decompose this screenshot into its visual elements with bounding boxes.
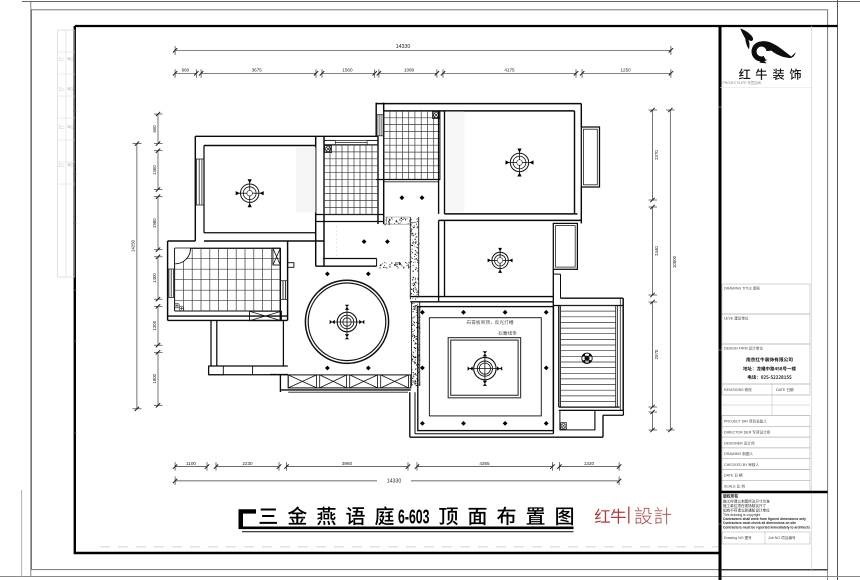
svg-text:施工时请以本图所注尺寸为准: 施工时请以本图所注尺寸为准 xyxy=(723,499,770,504)
svg-text:1080: 1080 xyxy=(404,68,415,73)
svg-text:1400: 1400 xyxy=(152,273,157,283)
svg-text:DIRECTOR DER 专项设计师: DIRECTOR DER 专项设计师 xyxy=(724,430,771,435)
svg-text:DATE 日 期: DATE 日 期 xyxy=(724,473,743,478)
svg-text:乙二: 乙二 xyxy=(58,56,64,61)
svg-text:乙二: 乙二 xyxy=(58,162,64,167)
svg-text:施工单位须在现场核实尺寸: 施工单位须在现场核实尺寸 xyxy=(723,503,767,508)
svg-text:660: 660 xyxy=(182,68,190,73)
svg-text:2230: 2230 xyxy=(242,461,253,466)
svg-text:SCALE 比 例: SCALE 比 例 xyxy=(724,484,745,489)
svg-text:1320: 1320 xyxy=(584,461,595,466)
svg-text:14330: 14330 xyxy=(387,478,402,484)
svg-text:REVISIONS 修改: REVISIONS 修改 xyxy=(724,387,752,392)
svg-text:660: 660 xyxy=(152,125,157,133)
svg-text:甲乙: 甲乙 xyxy=(67,124,73,129)
svg-text:6-603: 6-603 xyxy=(398,506,430,529)
svg-text:DRAWING TITLE 图名: DRAWING TITLE 图名 xyxy=(724,286,761,291)
svg-text:甲乙: 甲乙 xyxy=(67,56,73,61)
svg-text:PROJECT DIR 项目总监人: PROJECT DIR 项目总监人 xyxy=(724,419,767,424)
svg-text:DATE 日期: DATE 日期 xyxy=(776,387,794,392)
svg-text:Job NO 项目编号: Job NO 项目编号 xyxy=(768,535,796,540)
svg-text:乙二: 乙二 xyxy=(58,124,64,129)
svg-text:10500: 10500 xyxy=(672,255,677,268)
svg-text:甲乙: 甲乙 xyxy=(67,86,73,91)
svg-text:1300: 1300 xyxy=(152,320,157,330)
svg-text:1250: 1250 xyxy=(620,68,631,73)
svg-text:3675: 3675 xyxy=(252,68,263,73)
svg-text:1360: 1360 xyxy=(152,165,157,175)
svg-text:乙二: 乙二 xyxy=(58,86,64,91)
svg-text:14250: 14250 xyxy=(130,239,135,252)
svg-text:DRAWING 制图人: DRAWING 制图人 xyxy=(724,451,753,456)
svg-text:2970: 2970 xyxy=(654,349,659,359)
svg-text:2370: 2370 xyxy=(654,150,659,160)
svg-text:2440: 2440 xyxy=(654,246,659,256)
svg-text:14330: 14330 xyxy=(396,44,411,50)
svg-text:甲乙: 甲乙 xyxy=(67,162,73,167)
svg-text:版权所有: 版权所有 xyxy=(723,494,738,499)
svg-text:Drawing NO 图号: Drawing NO 图号 xyxy=(724,535,752,540)
svg-text:DESIGNER 设计师: DESIGNER 设计师 xyxy=(724,440,755,445)
svg-text:1980: 1980 xyxy=(152,218,157,228)
svg-text:如有不符请立即通知设计单位: 如有不符请立即通知设计单位 xyxy=(723,508,770,513)
svg-text:PROJECT/LIFE 写意空间: PROJECT/LIFE 写意空间 xyxy=(723,80,762,85)
svg-text:1100: 1100 xyxy=(186,461,196,466)
svg-text:4365: 4365 xyxy=(479,461,490,466)
svg-text:3960: 3960 xyxy=(342,461,353,466)
svg-text:4175: 4175 xyxy=(504,68,515,73)
svg-text:CHECKED BY 审核人: CHECKED BY 审核人 xyxy=(724,462,759,467)
svg-text:Contractors must be reported i: Contractors must be reported immediately… xyxy=(723,525,810,529)
svg-text:DESIGN FIRM 设计单位: DESIGN FIRM 设计单位 xyxy=(724,346,763,351)
svg-text:1560: 1560 xyxy=(342,68,353,73)
svg-text:1800: 1800 xyxy=(152,373,157,383)
svg-text:LEVE 建设单位: LEVE 建设单位 xyxy=(724,316,749,321)
